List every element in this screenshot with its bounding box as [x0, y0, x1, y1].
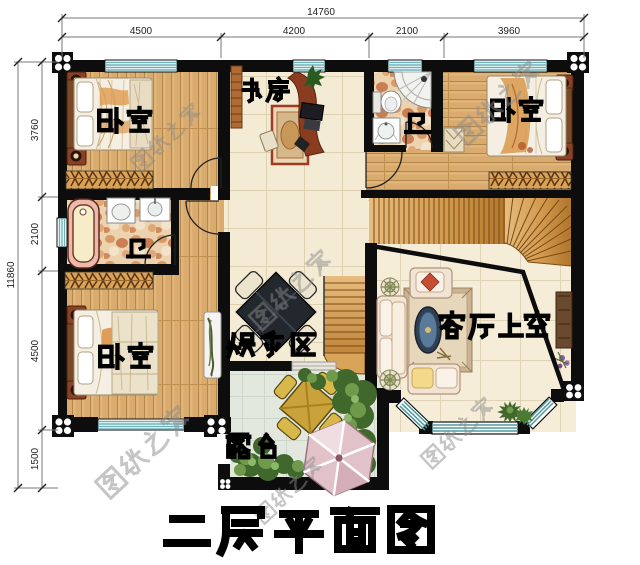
svg-text:4500: 4500: [30, 339, 41, 362]
svg-text:4500: 4500: [130, 26, 153, 37]
svg-text:2100: 2100: [30, 222, 41, 245]
svg-text:11860: 11860: [6, 261, 17, 289]
svg-text:3960: 3960: [498, 26, 521, 37]
svg-text:2100: 2100: [396, 26, 419, 37]
svg-text:3760: 3760: [30, 118, 41, 141]
svg-text:1500: 1500: [30, 447, 41, 470]
svg-text:4200: 4200: [283, 26, 306, 37]
svg-text:14760: 14760: [307, 7, 335, 18]
